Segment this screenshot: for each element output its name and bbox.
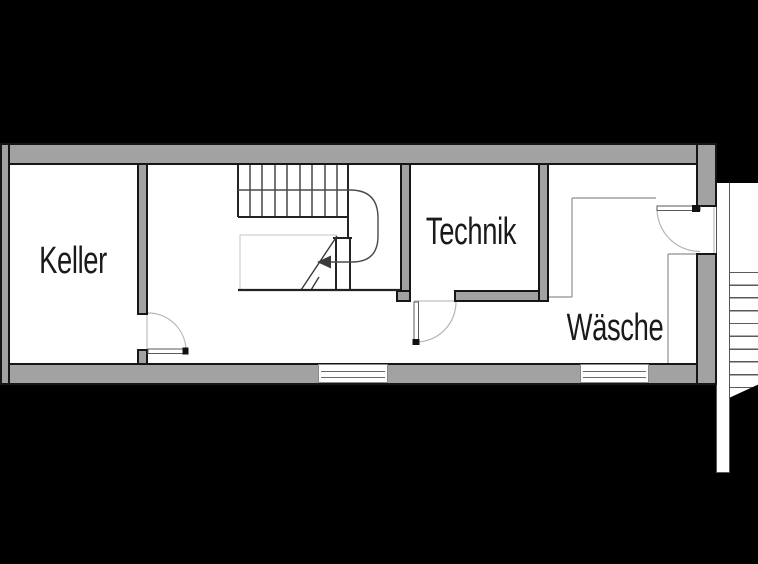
outer-wall-top [0, 143, 717, 165]
wall-hall-technik [400, 163, 411, 292]
outer-wall-right-upper [696, 143, 717, 207]
window-glazing [321, 371, 385, 378]
room-label-waesche: Wäsche [567, 309, 664, 347]
outer-wall-right-lower [696, 253, 717, 385]
window-hall [318, 364, 388, 383]
room-label-keller: Keller [39, 242, 107, 280]
exterior-stair-wall [716, 183, 730, 473]
wall-hall-technik-foot [396, 290, 411, 302]
wall-technik-waesche [538, 163, 549, 302]
wall-keller-divider-stub [137, 349, 148, 365]
outer-wall-left [0, 143, 10, 385]
wall-technik-bottom [454, 290, 542, 302]
window-glazing [583, 371, 646, 378]
floorplan-canvas: Keller Technik Wäsche [0, 0, 758, 564]
exterior-stair [730, 272, 758, 400]
wall-keller-divider [137, 163, 148, 315]
room-label-technik: Technik [426, 213, 516, 251]
window-waesche [580, 364, 649, 383]
